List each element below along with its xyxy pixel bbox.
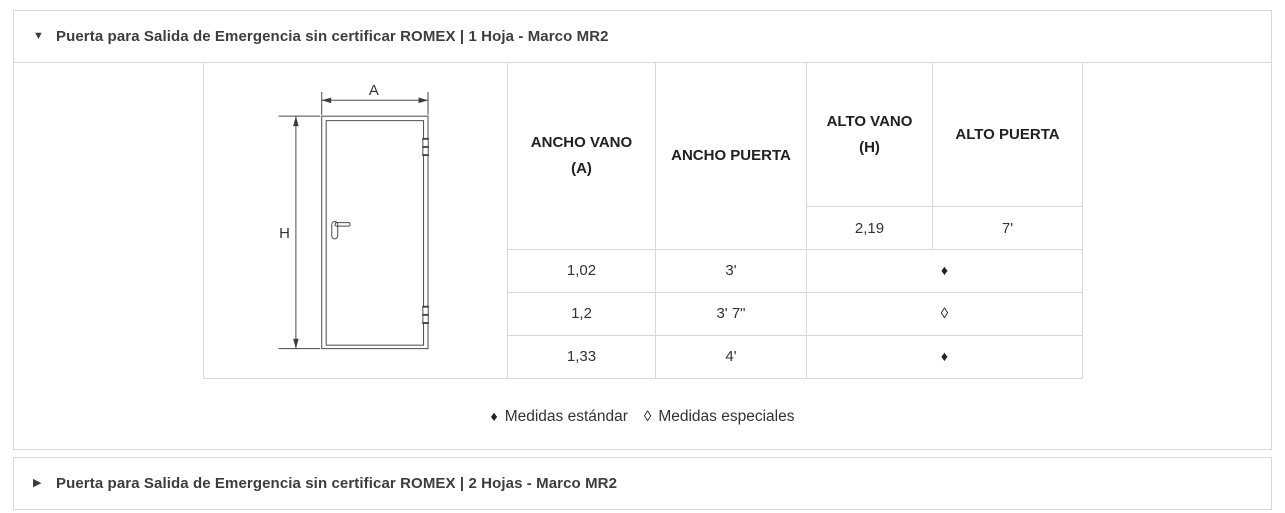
- accordion-title-1-hoja: Puerta para Salida de Emergencia sin cer…: [56, 28, 609, 45]
- width-dimension-label: A: [368, 83, 378, 99]
- header-ancho-vano-line2: (A): [508, 156, 655, 182]
- special-lozenge-icon: ◊: [644, 408, 651, 425]
- accordion-title-2-hojas: Puerta para Salida de Emergencia sin cer…: [56, 475, 617, 492]
- triangle-right-icon: ▶: [33, 478, 47, 489]
- arrowhead-right-icon: [418, 98, 427, 104]
- standard-diamond-icon: ♦: [941, 262, 948, 278]
- accordion-body-1-hoja: A H ANCHO VANO (A) ANCHO PUERTA ALTO VAN…: [14, 62, 1271, 449]
- cell-alto-puerta-value: 7': [933, 207, 1083, 249]
- triangle-down-icon: ▼: [33, 31, 47, 42]
- door-leaf: [326, 121, 423, 346]
- spec-table: A H ANCHO VANO (A) ANCHO PUERTA ALTO VAN…: [203, 62, 1083, 379]
- accordion-header-1-hoja[interactable]: ▼ Puerta para Salida de Emergencia sin c…: [14, 11, 1271, 62]
- cell-measure-marker: ♦: [807, 249, 1083, 292]
- cell-ancho-vano: 1,2: [508, 293, 656, 335]
- measures-legend: ♦Medidas estándar◊Medidas especiales: [14, 408, 1271, 426]
- header-alto-vano-line1: ALTO VANO: [807, 109, 932, 135]
- cell-measure-marker: ◊: [807, 293, 1083, 335]
- standard-diamond-icon: ♦: [491, 408, 498, 424]
- cell-measure-marker: ♦: [807, 335, 1083, 378]
- accordion-section-2-hojas: ▶ Puerta para Salida de Emergencia sin c…: [13, 457, 1272, 510]
- door-diagram: A H: [205, 63, 507, 374]
- header-ancho-puerta: ANCHO PUERTA: [656, 63, 807, 250]
- cell-ancho-vano: 1,02: [508, 249, 656, 292]
- section-gap: [13, 450, 1272, 457]
- accordion-header-2-hojas[interactable]: ▶ Puerta para Salida de Emergencia sin c…: [14, 458, 1271, 509]
- header-alto-vano: ALTO VANO (H): [807, 63, 933, 207]
- page: ▼ Puerta para Salida de Emergencia sin c…: [0, 0, 1285, 510]
- cell-ancho-vano: 1,33: [508, 335, 656, 378]
- cell-ancho-puerta: 3' 7": [656, 293, 807, 335]
- header-alto-puerta: ALTO PUERTA: [933, 63, 1083, 207]
- arrowhead-down-icon: [293, 339, 299, 349]
- cell-ancho-puerta: 3': [656, 249, 807, 292]
- cell-ancho-puerta: 4': [656, 335, 807, 378]
- cell-alto-vano-value: 2,19: [807, 207, 933, 249]
- special-lozenge-icon: ◊: [941, 305, 948, 322]
- header-ancho-vano: ANCHO VANO (A): [508, 63, 656, 250]
- legend-special-label: Medidas especiales: [658, 408, 794, 425]
- arrowhead-left-icon: [321, 98, 330, 104]
- height-dimension-label: H: [279, 226, 290, 242]
- header-ancho-vano-line1: ANCHO VANO: [508, 130, 655, 156]
- accordion-section-1-hoja: ▼ Puerta para Salida de Emergencia sin c…: [13, 10, 1272, 450]
- arrowhead-up-icon: [293, 116, 299, 126]
- legend-standard-label: Medidas estándar: [505, 408, 628, 425]
- header-alto-vano-line2: (H): [807, 135, 932, 161]
- door-handle-icon: [331, 221, 349, 238]
- door-diagram-cell: A H: [204, 63, 508, 379]
- standard-diamond-icon: ♦: [941, 348, 948, 364]
